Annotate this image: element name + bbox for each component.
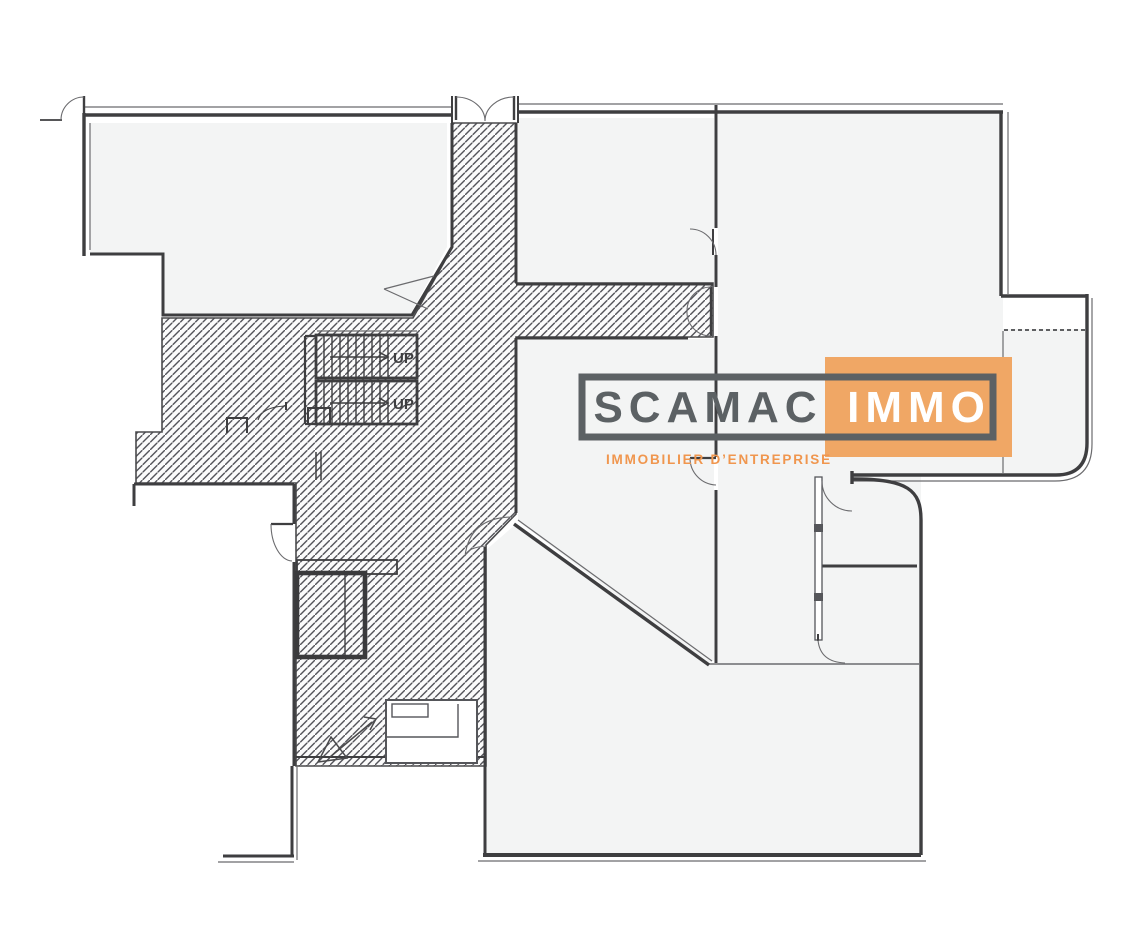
room-top-middle-fill	[518, 118, 714, 283]
stairs-up-label: UP	[393, 396, 414, 413]
glass-partition-frame	[815, 477, 822, 640]
glass-partition-mullion	[814, 524, 823, 532]
door-double-entrance-top	[452, 96, 518, 123]
glass-partition	[814, 477, 823, 640]
right-room-bay-niche	[1003, 298, 1085, 329]
glass-partition-mullion	[814, 593, 823, 601]
door-left-zone	[271, 524, 293, 561]
reception-counter	[386, 700, 477, 763]
logo-tagline: IMMOBILIER D’ENTREPRISE	[606, 452, 832, 467]
door-exterior-top-left	[40, 96, 84, 121]
floor-plan-page: UP UP SCAMAC IMMO IMMOBILIER D’ENTREPRIS…	[0, 0, 1128, 946]
logo-text-immo: IMMO	[847, 383, 991, 432]
counter-inset-box	[392, 704, 428, 717]
logo-text-scamac: SCAMAC	[593, 383, 822, 432]
stairs-up-label: UP	[393, 350, 414, 367]
floor-plan-svg: UP UP SCAMAC IMMO IMMOBILIER D’ENTREPRIS…	[0, 0, 1128, 946]
